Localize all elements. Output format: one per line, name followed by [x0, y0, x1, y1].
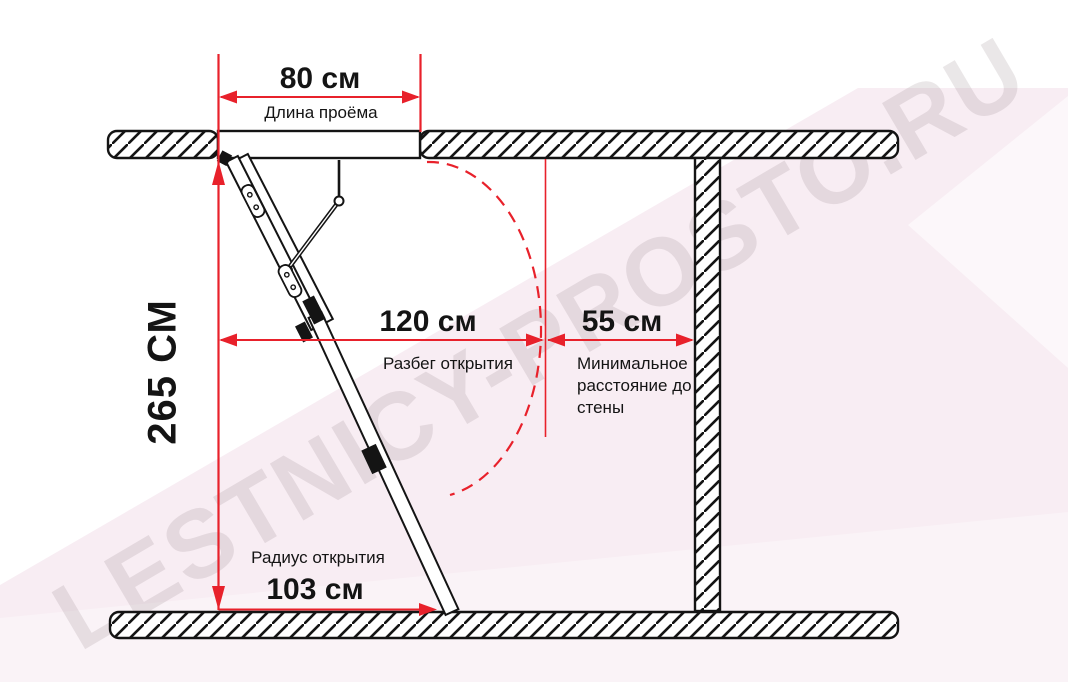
arm-pivot-top	[335, 197, 344, 206]
opening-radius-label: Радиус открытия	[251, 548, 385, 568]
arrowhead	[547, 334, 565, 347]
arrowhead	[676, 334, 694, 347]
opening-length-value: 80 см	[280, 62, 361, 96]
floor-slab	[110, 612, 898, 638]
ceiling-height-value: 265 СМ	[141, 299, 186, 445]
opening-run-value: 120 см	[379, 305, 476, 339]
arrowhead	[402, 91, 420, 104]
wall-clearance-value: 55 см	[582, 305, 663, 339]
opening-run-label: Разбег открытия	[383, 354, 513, 374]
wall-clearance-label: Минимальное расстояние до стены	[577, 353, 699, 419]
attic-ladder-dimension-diagram: LESTNICY-PROSTO.RU	[0, 0, 1068, 682]
spring-arm-highlight	[288, 201, 339, 269]
arrowhead-up	[212, 161, 225, 185]
arrowhead	[219, 91, 237, 104]
arrowhead	[219, 334, 237, 347]
folding-ladder	[217, 150, 459, 615]
opening-length-label: Длина проёма	[264, 103, 377, 123]
arrowhead-down	[212, 586, 225, 610]
opening-radius-value: 103 см	[266, 573, 363, 607]
